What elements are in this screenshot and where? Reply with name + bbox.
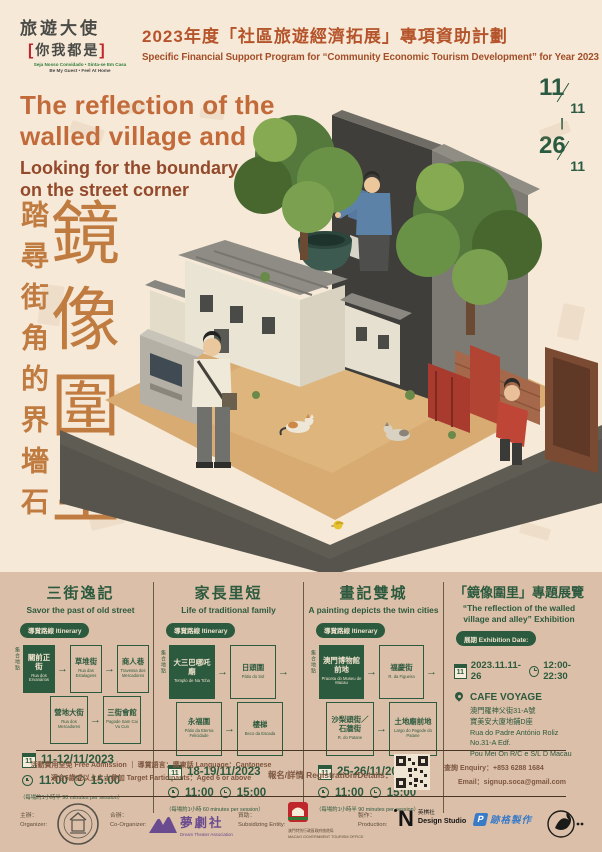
exhibition-date-row: 11 2023.11.11-26 12:00-22:30: [454, 660, 590, 682]
partner-logo: [545, 804, 585, 844]
column3-title-cn: 畫記雙城: [308, 582, 439, 603]
route-row: 營地大街 Rua dos Mercadores → 三街會館 Pagode Sa…: [50, 696, 149, 744]
bracket-right: ]: [99, 42, 106, 59]
mgto-logo-block: 澳門特別行政區政府旅遊局 MACAO GOVERNMENT TOURISM OF…: [288, 802, 366, 840]
stop-name-pt: R. do Patane: [338, 736, 362, 741]
stop-name-pt: Largo do Pagode do Patane: [391, 729, 435, 739]
enquiry-email: Email：signup.soca@gmail.com: [458, 776, 566, 790]
stop-name-cn: 營地大街: [54, 709, 84, 718]
organizer-label-cn: 主辦：: [20, 812, 47, 821]
stop-name-cn: 關前正街: [25, 654, 53, 672]
stop-name-cn: 樓梯: [253, 721, 268, 730]
address-line: 澳門羅神父街31-A號: [470, 706, 590, 717]
meeting-point-label: 集合地點: [310, 650, 317, 694]
route-stop: 永福圍 Pátio da Eterna Felicidade: [176, 702, 222, 756]
arrow-icon: →: [364, 666, 379, 678]
stop-name-cn: 商人巷: [122, 658, 144, 667]
stop-name-pt: Rua dos Ervanários: [25, 674, 53, 684]
route-row: 集合地點 大三巴哪吒廟 Templo de Na Tcha → 日頭圍 Páti…: [160, 645, 299, 699]
stop-name-pt: Pátio do Sol: [242, 675, 265, 680]
stop-name-cn: 草堆街: [75, 658, 97, 667]
stop-name-cn: 土地廟前地: [395, 718, 432, 727]
exhibition-time: 12:00-22:30: [543, 660, 590, 682]
arrow-icon: →: [374, 723, 389, 735]
in-logo-glyph: N: [398, 808, 414, 830]
logo-subtitle: [你我都是]: [28, 40, 140, 60]
route-row: 集合地點 關前正街 Rua dos Ervanários → 草堆街 Rua d…: [14, 645, 149, 693]
arrow-icon: →: [88, 714, 103, 726]
route-row: 永福圍 Pátio da Eterna Felicidade → 樓梯 Beco…: [176, 702, 299, 756]
route-stop: 沙梨頭街／石牆街 R. do Patane: [326, 702, 374, 756]
stop-name-cn: 大三巴哪吒廟: [171, 659, 213, 677]
stop-name-pt: Rua dos Mercadores: [52, 720, 86, 730]
location-pin-icon: [454, 692, 465, 703]
subsidy-label-cn: 資助：: [238, 812, 285, 821]
coorganizer-label: 合辦： Co-Organizer:: [110, 812, 146, 829]
stop-name-pt: R. da Figueira: [388, 675, 414, 680]
organizer-label: 主辦： Organizer:: [20, 812, 47, 829]
arrow-icon: →: [215, 666, 230, 678]
stop-name-pt: Pagode Sam Cai Vu Cun: [105, 720, 139, 730]
stop-name-cn: 福慶街: [390, 664, 412, 673]
divider-line: [36, 796, 566, 797]
registration-label: 報名/詳情 Registration/Details：: [268, 769, 393, 781]
arrow-icon: →: [424, 666, 439, 678]
column2-title-en: Life of traditional family: [158, 605, 299, 616]
meeting-point-label: 集合地點: [14, 647, 21, 691]
logo-english-tagline: Be My Guest • Feel At Home: [20, 68, 140, 73]
meeting-point-label: 集合地點: [160, 650, 167, 694]
production-name-cn: 英棋社: [418, 808, 466, 816]
stop-name-pt: Beco da Escada: [245, 732, 276, 737]
stop-name-pt: Travessa dos Mercadores: [119, 669, 147, 679]
subsidy-label: 資助： Subsidizing Entity:: [238, 812, 285, 829]
dream-theater-logo: [148, 816, 178, 834]
coorganizer-name: 夢劇社 Dream Theater Association: [180, 812, 233, 837]
in-design-studio-logo: N 英棋社 Design Studio: [398, 808, 466, 830]
mgto-logo: [288, 802, 308, 822]
column4-title-en-line1: “The reflection of the walled: [448, 603, 590, 614]
route-stop: 澳門博物館前地 Praceta do Museu de Macau: [319, 645, 364, 699]
stop-name-pt: Rua das Estalagens: [72, 669, 100, 679]
clock-icon: [529, 666, 539, 677]
bird: [331, 521, 344, 530]
admission-info: 活動費用全免 Free Admission ｜ 導賞語言：廣東話 Languag…: [26, 759, 276, 786]
exhibition-dates: 2023.11.11-26: [471, 660, 525, 682]
route-stop: 福慶街 R. da Figueira: [379, 645, 424, 699]
production-name-en: Design Studio: [418, 816, 466, 825]
enquiry-phone: 查詢 Enquiry：+853 6288 1684: [444, 762, 566, 776]
route-stop: 關前正街 Rua dos Ervanários: [23, 645, 55, 693]
production-name: 英棋社 Design Studio: [418, 808, 466, 825]
coorganizer-label-cn: 合辦：: [110, 812, 146, 821]
stop-name-pt: Templo de Na Tcha: [174, 679, 210, 684]
logo-portuguese-tagline: Seja Nosso Convidado • Sinta-se Em Casa: [20, 62, 140, 67]
arrow-icon: →: [222, 723, 237, 735]
route-stop: 大三巴哪吒廟 Templo de Na Tcha: [169, 645, 215, 699]
stop-name-cn: 三街會館: [107, 709, 137, 718]
subsidy-name: 澳門特別行政區政府旅遊局 MACAO GOVERNMENT TOURISM OF…: [288, 829, 366, 840]
column2-title-cn: 家長里短: [158, 582, 299, 603]
organizer-seal-logo: [56, 802, 100, 846]
organizers-footer: 主辦： Organizer: 合辦： Co-Organizer: 夢劇社 Dre…: [0, 800, 602, 852]
venue-address: 澳門羅神父街31-A號 寶美安大廈地鋪D座 Rua do Padre Antón…: [470, 706, 590, 760]
wooden-door: [545, 347, 598, 473]
column1-title-en: Savor the past of old street: [12, 605, 149, 616]
exhibition-date-badge: 展期 Exhibition Date:: [456, 631, 536, 646]
venue-name: CAFE VOYAGE: [470, 692, 542, 703]
logo-subtitle-text: 你我都是: [35, 42, 99, 58]
subsidy-name-en: MACAO GOVERNMENT TOURISM OFFICE: [288, 835, 366, 841]
coorganizer-label-en: Co-Organizer:: [110, 821, 146, 830]
production2-logo: P 跡格製作: [474, 812, 532, 826]
stop-name-cn: 日頭圍: [242, 664, 264, 673]
route-stop: 日頭圍 Pátio do Sol: [230, 645, 276, 699]
subsidy-label-en: Subsidizing Entity:: [238, 821, 285, 830]
organizer-label-en: Organizer:: [20, 821, 47, 830]
itinerary-badge: 導賞路線 Itinerary: [166, 623, 235, 638]
village-diorama-illustration: [0, 95, 602, 575]
column4-title-en-line2: village and alley” Exhibition: [448, 614, 590, 625]
stop-name-pt: Pátio da Eterna Felicidade: [178, 729, 220, 739]
stop-name-pt: Praceta do Museu de Macau: [321, 677, 362, 687]
logo-title: 旅遊大使: [20, 14, 140, 39]
contact-info: 查詢 Enquiry：+853 6288 1684 Email：signup.s…: [444, 762, 566, 790]
route-stop: 營地大街 Rua dos Mercadores: [50, 696, 88, 744]
program-title-cn: 2023年度「社區旅遊經濟拓展」專項資助計劃: [142, 22, 598, 47]
itinerary-badge: 導賞路線 Itinerary: [316, 623, 385, 638]
route-stop: 三街會館 Pagode Sam Cai Vu Cun: [103, 696, 141, 744]
route-stop: 草堆街 Rua das Estalagens: [70, 645, 102, 693]
address-line: No.31-A Edf.: [470, 738, 590, 749]
arrow-icon: →: [55, 663, 70, 675]
production2-name: 跡格製作: [490, 812, 532, 826]
column4-title-cn: 「鏡像圍里」專題展覽: [448, 582, 590, 601]
calendar-icon: 11: [454, 664, 467, 679]
coorganizer-name-cn: 夢劇社: [180, 812, 233, 831]
column3-title-en: A painting depicts the twin cities: [308, 605, 439, 616]
stop-name-cn: 永福圍: [188, 718, 210, 727]
production-label-en: Production:: [358, 821, 387, 830]
program-title-en: Specific Financial Support Program for “…: [142, 52, 598, 63]
production-label: 製作： Production:: [358, 812, 387, 829]
route-stop: 商人巷 Travessa dos Mercadores: [117, 645, 149, 693]
tourism-ambassador-logo: 旅遊大使 [你我都是] Seja Nosso Convidado • Sinta…: [20, 14, 140, 73]
route-stop: 土地廟前地 Largo do Pagode do Patane: [389, 702, 437, 756]
route-row: 集合地點 澳門博物館前地 Praceta do Museu de Macau →…: [310, 645, 439, 699]
production2-glyph: P: [473, 813, 489, 826]
stop-name-cn: 澳門博物館前地: [321, 657, 362, 675]
divider-line: [36, 750, 566, 751]
arrow-icon: →: [276, 666, 291, 678]
address-line: Rua do Padre António Roliz: [470, 728, 590, 739]
production-label-cn: 製作：: [358, 812, 387, 821]
registration-qr-code: [394, 754, 430, 790]
admission-line2: 適合6歲或以上人士參加 Target Participants：Aged 6 o…: [26, 772, 276, 785]
route-stop: 樓梯 Beco da Escada: [237, 702, 283, 756]
admission-line1: 活動費用全免 Free Admission ｜ 導賞語言：廣東話 Languag…: [26, 759, 276, 772]
itinerary-badge: 導賞路線 Itinerary: [20, 623, 89, 638]
route-row: 沙梨頭街／石牆街 R. do Patane → 土地廟前地 Largo do P…: [326, 702, 439, 756]
arrow-icon: →: [102, 663, 117, 675]
venue-row: CAFE VOYAGE: [454, 692, 590, 703]
program-title-block: 2023年度「社區旅遊經濟拓展」專項資助計劃 Specific Financia…: [142, 22, 598, 63]
info-panel: 三街逸記 Savor the past of old street 導賞路線 I…: [0, 572, 602, 852]
address-line: 寶美安大廈地鋪D座: [470, 717, 590, 728]
coorganizer-name-en: Dream Theater Association: [180, 832, 233, 837]
stop-name-cn: 沙梨頭街／石牆街: [328, 716, 372, 734]
column1-title-cn: 三街逸記: [12, 582, 149, 603]
